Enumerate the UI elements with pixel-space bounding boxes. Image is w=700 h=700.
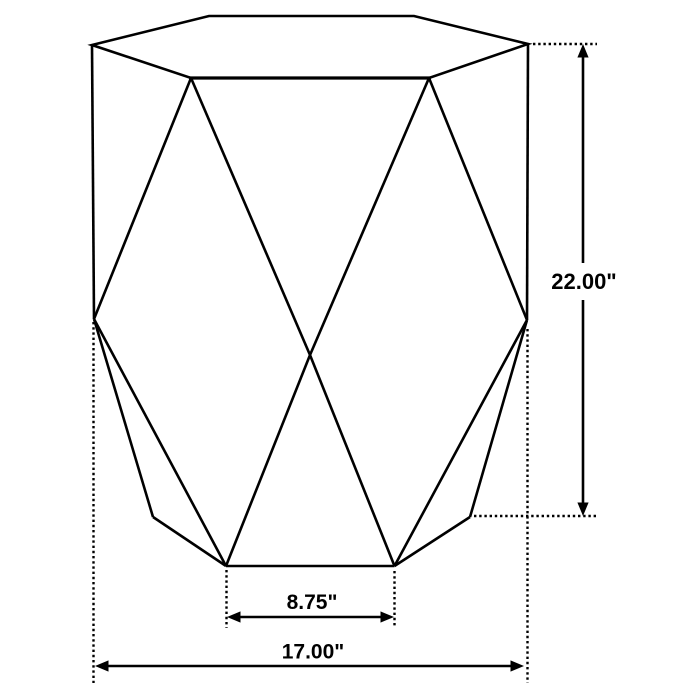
svg-text:17.00": 17.00" [282,641,345,664]
svg-text:8.75": 8.75" [287,591,338,614]
svg-text:22.00": 22.00" [551,269,616,294]
